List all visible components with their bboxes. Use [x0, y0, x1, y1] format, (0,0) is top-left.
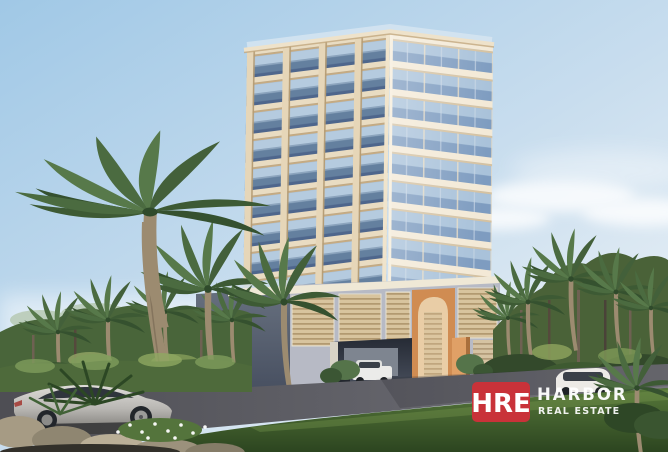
tower-glare [388, 32, 493, 292]
logo-badge-text: HRE [471, 389, 531, 419]
property-render-image: HRE HARBOR REAL ESTATE [0, 0, 668, 452]
watermark-logo: HRE HARBOR REAL ESTATE [471, 382, 627, 422]
logo-brand-subtitle: REAL ESTATE [538, 406, 620, 417]
logo-brand-name: HARBOR [537, 385, 628, 404]
arch-louver [424, 312, 442, 380]
